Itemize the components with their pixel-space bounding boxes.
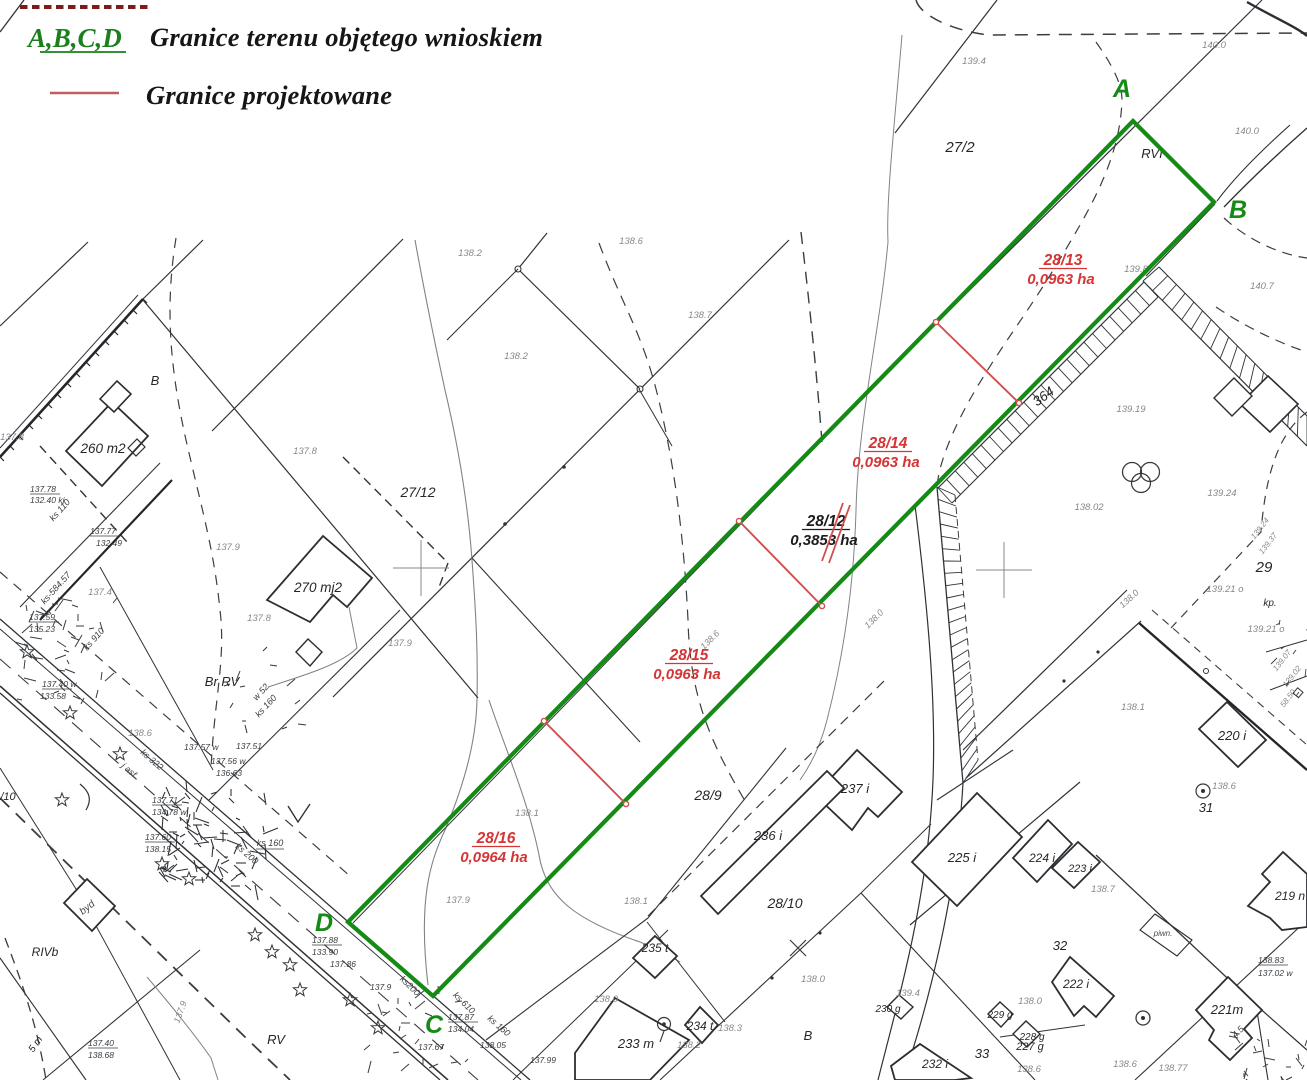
svg-text:138.2: 138.2 <box>458 248 482 259</box>
svg-text:B: B <box>804 1028 813 1043</box>
svg-text:134.78 w: 134.78 w <box>152 807 187 817</box>
svg-text:229 g: 229 g <box>986 1010 1012 1021</box>
svg-text:138.15: 138.15 <box>145 844 171 854</box>
svg-text:138.05: 138.05 <box>480 1040 506 1050</box>
svg-text:0,0963 ha: 0,0963 ha <box>653 666 721 683</box>
svg-text:140.0: 140.0 <box>1235 126 1259 137</box>
svg-text:Granice terenu objętego wniosk: Granice terenu objętego wnioskiem <box>150 22 543 52</box>
svg-text:28/14: 28/14 <box>868 435 908 452</box>
svg-text:/10: /10 <box>0 791 17 803</box>
svg-text:137.78: 137.78 <box>30 484 56 494</box>
svg-text:222 i: 222 i <box>1062 977 1089 991</box>
svg-text:138.83: 138.83 <box>1258 955 1284 965</box>
svg-text:kp.: kp. <box>1263 598 1276 609</box>
svg-text:138.0: 138.0 <box>594 994 618 1005</box>
svg-text:140.0: 140.0 <box>1202 40 1226 51</box>
svg-text:Br RV: Br RV <box>205 674 241 689</box>
svg-text:135.23: 135.23 <box>29 624 55 634</box>
svg-text:234 t: 234 t <box>686 1019 714 1033</box>
svg-text:132.49: 132.49 <box>96 538 122 548</box>
svg-text:ks 910: ks 910 <box>81 626 106 652</box>
svg-text:139.4: 139.4 <box>896 988 920 999</box>
svg-text:138.0: 138.0 <box>1018 996 1042 1007</box>
svg-text:270 mj2: 270 mj2 <box>293 580 343 595</box>
svg-text:137.71: 137.71 <box>152 795 178 805</box>
svg-text:28/15: 28/15 <box>669 647 709 664</box>
svg-text:138.0: 138.0 <box>862 607 885 630</box>
svg-text:138.2: 138.2 <box>504 351 528 362</box>
svg-text:137.87: 137.87 <box>448 1012 474 1022</box>
svg-text:28/9: 28/9 <box>693 787 721 803</box>
svg-text:RIVb: RIVb <box>32 945 59 959</box>
svg-text:137.9: 137.9 <box>370 982 392 992</box>
svg-text:137.57 w: 137.57 w <box>184 742 219 752</box>
svg-text:138.6: 138.6 <box>1113 1059 1137 1070</box>
svg-text:D: D <box>315 909 333 937</box>
svg-text:220 i: 220 i <box>1217 728 1247 743</box>
svg-text:138.7: 138.7 <box>688 310 712 321</box>
svg-text:139.02: 139.02 <box>1281 664 1303 689</box>
svg-text:137.8: 137.8 <box>0 432 24 443</box>
svg-text:134.04: 134.04 <box>448 1024 474 1034</box>
svg-text:138.2: 138.2 <box>677 1040 701 1051</box>
svg-text:0,0963 ha: 0,0963 ha <box>1027 271 1095 288</box>
svg-text:137.9: 137.9 <box>388 638 412 649</box>
svg-text:RV: RV <box>267 1032 286 1047</box>
svg-text:31: 31 <box>1199 800 1213 815</box>
svg-text:0,0963 ha: 0,0963 ha <box>852 454 920 471</box>
svg-text:33: 33 <box>975 1046 990 1061</box>
svg-text:137.02 w: 137.02 w <box>1258 968 1293 978</box>
svg-text:232 i: 232 i <box>921 1057 948 1071</box>
svg-text:27/2: 27/2 <box>944 139 975 156</box>
svg-text:B: B <box>151 373 160 388</box>
svg-text:138.68: 138.68 <box>88 1050 114 1060</box>
svg-text:137.51: 137.51 <box>236 741 262 751</box>
svg-text:236 i: 236 i <box>753 828 783 843</box>
svg-text:138.02: 138.02 <box>1074 502 1104 513</box>
svg-text:ks 160: ks 160 <box>257 838 284 848</box>
svg-text:233 m: 233 m <box>617 1036 654 1051</box>
svg-text:138.0: 138.0 <box>801 974 825 985</box>
svg-text:137.59: 137.59 <box>29 612 55 622</box>
svg-text:137.9: 137.9 <box>172 1000 189 1025</box>
svg-text:235 t: 235 t <box>641 941 669 955</box>
svg-text:137.99: 137.99 <box>530 1055 556 1065</box>
svg-text:28/16: 28/16 <box>476 830 516 847</box>
svg-text:137.40 w: 137.40 w <box>42 679 77 689</box>
svg-text:137.4: 137.4 <box>88 587 112 598</box>
svg-text:27/12: 27/12 <box>399 484 435 500</box>
svg-text:B: B <box>1229 196 1247 224</box>
svg-text:ks 160: ks 160 <box>486 1013 513 1038</box>
svg-text:piwn.: piwn. <box>1153 929 1173 938</box>
svg-text:136.63: 136.63 <box>216 768 242 778</box>
svg-text:140.7: 140.7 <box>1250 281 1274 292</box>
svg-text:138.1: 138.1 <box>515 808 539 819</box>
svg-text:138.1: 138.1 <box>624 896 648 907</box>
svg-text:138.3: 138.3 <box>718 1023 742 1034</box>
svg-text:137.9: 137.9 <box>446 895 470 906</box>
svg-text:28/10: 28/10 <box>766 895 802 911</box>
svg-text:29: 29 <box>1255 559 1273 576</box>
svg-text:138.6: 138.6 <box>619 236 643 247</box>
svg-text:227 g: 227 g <box>1015 1041 1044 1053</box>
svg-text:133.58: 133.58 <box>40 691 66 701</box>
svg-text:138.0: 138.0 <box>1117 588 1140 611</box>
svg-text:230 g: 230 g <box>874 1004 900 1015</box>
svg-text:5 m: 5 m <box>27 1035 46 1055</box>
svg-text:138.6: 138.6 <box>128 728 152 739</box>
svg-text:137.8: 137.8 <box>247 613 271 624</box>
svg-text:137.56 w: 137.56 w <box>211 756 246 766</box>
svg-text:137.86: 137.86 <box>330 959 356 969</box>
svg-text:C: C <box>425 1011 444 1039</box>
svg-text:0,0964 ha: 0,0964 ha <box>460 849 528 866</box>
svg-text:28/12: 28/12 <box>806 513 846 530</box>
svg-text:137.60: 137.60 <box>145 832 171 842</box>
svg-text:219 n: 219 n <box>1274 889 1305 903</box>
svg-text:0,3853 ha: 0,3853 ha <box>790 532 858 549</box>
svg-text:A,B,C,D: A,B,C,D <box>26 23 122 53</box>
svg-text:223 i: 223 i <box>1067 863 1092 875</box>
svg-text:224 i: 224 i <box>1028 851 1055 865</box>
svg-text:139.21 o: 139.21 o <box>1248 624 1285 635</box>
svg-text:138.77: 138.77 <box>1158 1063 1188 1074</box>
svg-text:132.40 kj: 132.40 kj <box>30 495 66 505</box>
svg-text:137.40: 137.40 <box>88 1038 114 1048</box>
svg-text:138.1: 138.1 <box>1121 702 1145 713</box>
svg-text:Granice projektowane: Granice projektowane <box>146 80 392 110</box>
svg-text:139.21 o: 139.21 o <box>1207 584 1244 595</box>
svg-text:A: A <box>1112 75 1131 103</box>
svg-text:138.6: 138.6 <box>1017 1064 1041 1075</box>
svg-text:138.7: 138.7 <box>1091 884 1115 895</box>
svg-text:137.77: 137.77 <box>90 526 116 536</box>
svg-text:32: 32 <box>1053 938 1068 953</box>
svg-text:133.90: 133.90 <box>312 947 338 957</box>
svg-text:137.67: 137.67 <box>418 1042 444 1052</box>
svg-text:j asf.: j asf. <box>119 760 141 781</box>
svg-text:139.4: 139.4 <box>962 56 986 67</box>
svg-text:221m: 221m <box>1210 1002 1244 1017</box>
svg-text:139.19: 139.19 <box>1116 404 1146 415</box>
svg-text:28/13: 28/13 <box>1043 252 1083 269</box>
svg-text:139.24: 139.24 <box>1207 488 1236 499</box>
svg-text:260 m2: 260 m2 <box>79 441 126 456</box>
svg-text:137.8: 137.8 <box>293 446 317 457</box>
svg-text:138.6: 138.6 <box>1212 781 1236 792</box>
svg-text:225 i: 225 i <box>947 850 977 865</box>
svg-text:137.9: 137.9 <box>216 542 240 553</box>
